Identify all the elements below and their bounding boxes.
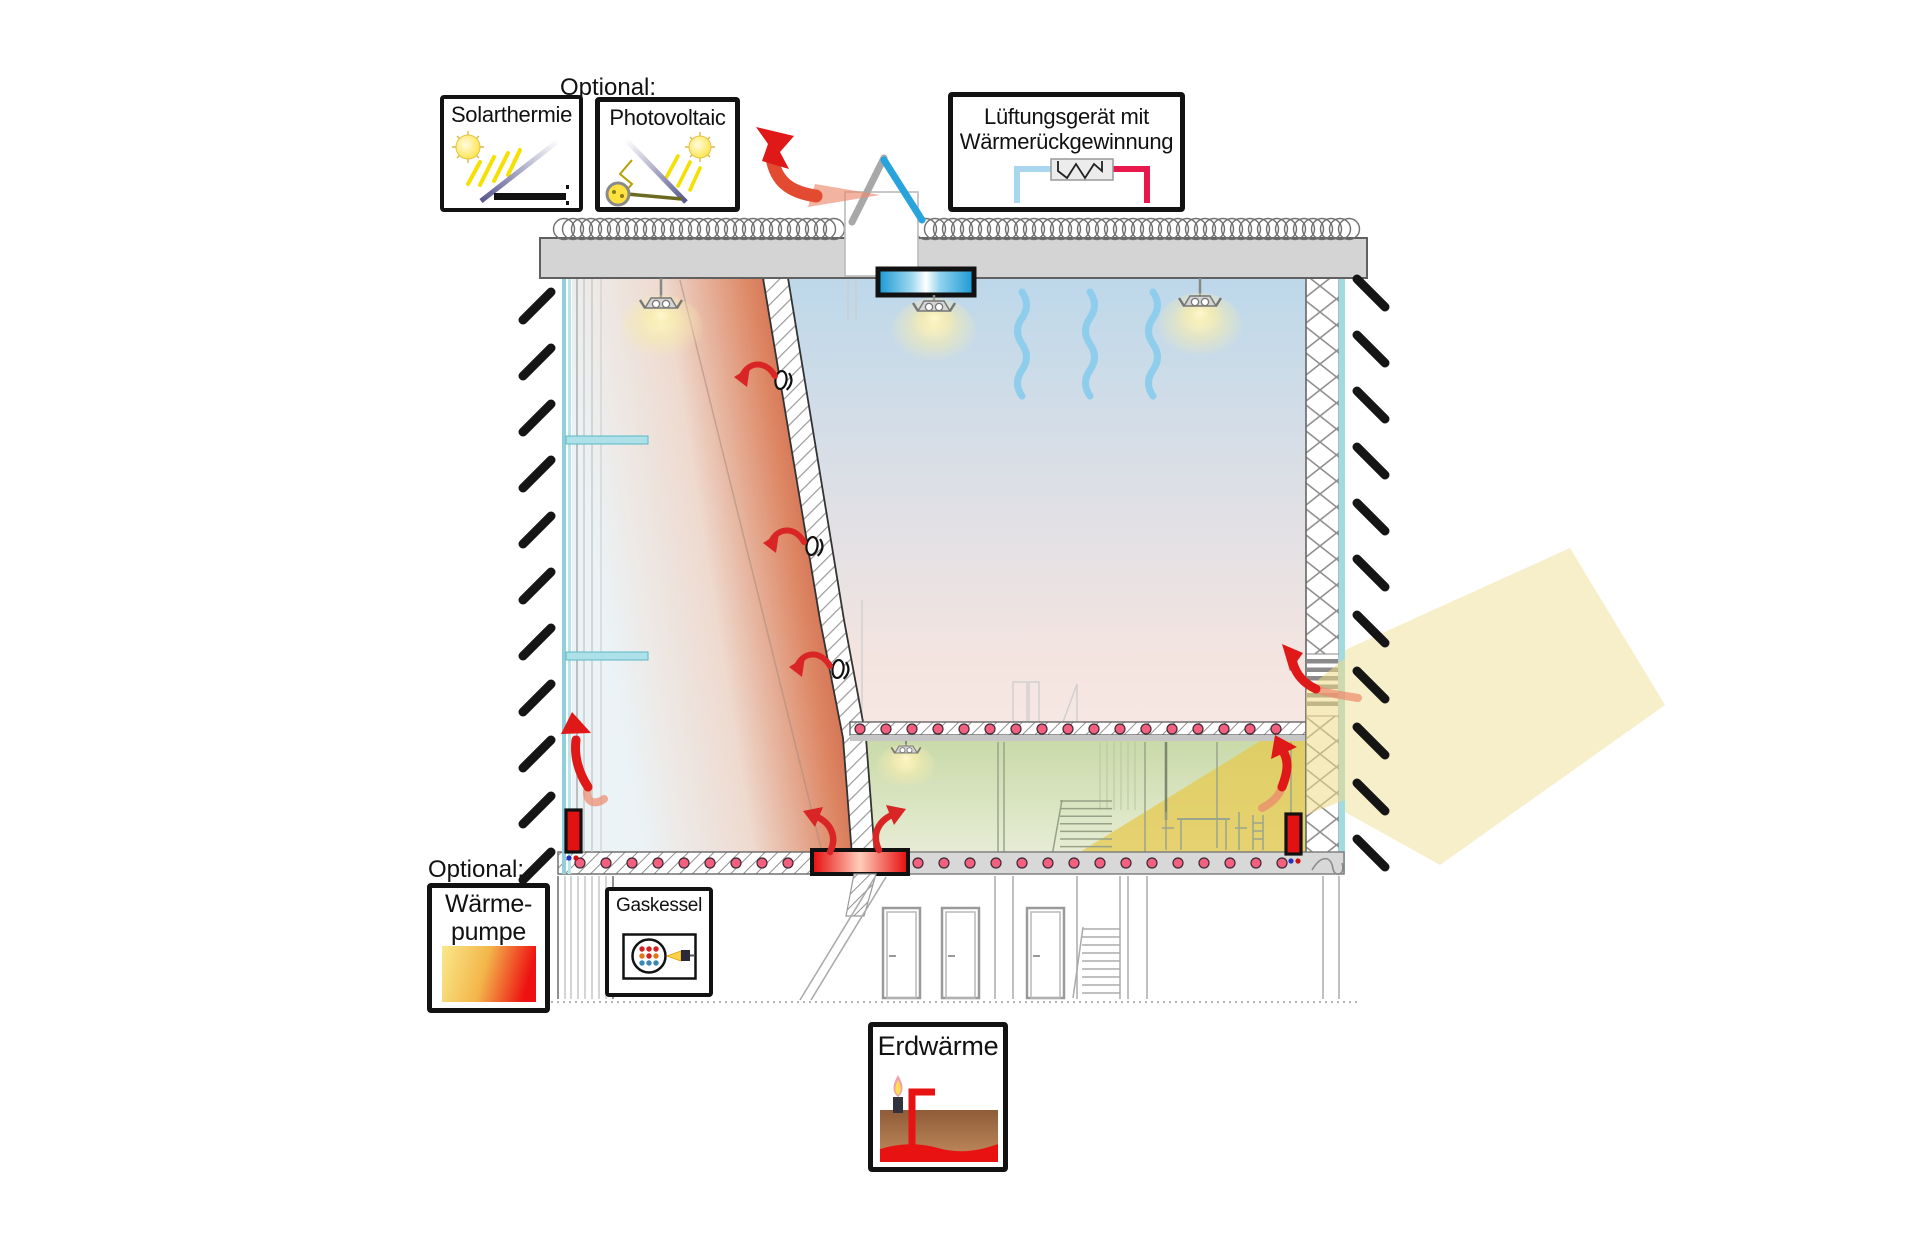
ground-probe-flame-icon [873, 1067, 1003, 1167]
mezzanine-slab [850, 722, 1306, 741]
radiator-left [566, 810, 581, 852]
basement-wall-stub [846, 874, 876, 916]
roof-insulation-coil [554, 219, 1360, 240]
gas-burner-icon [622, 933, 697, 981]
heat-gradient-swatch [442, 946, 536, 1002]
supply-air-diffuser [878, 269, 974, 301]
ventilation-label-line1: Lüftungsgerät mit [953, 105, 1180, 130]
heat-exchanger-pipes-icon [1001, 153, 1161, 205]
solar-thermal-label: Solarthermie [444, 103, 579, 128]
optional-label-bottom: Optional: [428, 856, 524, 884]
legend-box-photovoltaic: Photovoltaic [595, 97, 740, 212]
heat-pump-label-line2: pumpe [432, 918, 545, 946]
radiator-right [1286, 814, 1301, 854]
basement-staircase [1073, 927, 1120, 998]
photovoltaic-label: Photovoltaic [600, 106, 735, 131]
facade-ledge [566, 436, 648, 444]
site-hatch-left [523, 292, 551, 880]
legend-box-heat-pump: Wärme- pumpe [427, 883, 550, 1013]
legend-box-ventilation: Lüftungsgerät mit Wärmerückgewinnung [948, 92, 1185, 212]
exhaust-air-arrow [756, 127, 880, 207]
legend-box-solar-thermal: Solarthermie [440, 95, 583, 212]
energy-concept-diagram: Optional: Solarthermie Photovoltaic [0, 0, 1920, 1236]
solar-collector-sun-icon [446, 129, 577, 209]
sun-beam-exterior [1345, 548, 1665, 865]
facade-ledge [566, 652, 648, 660]
basement-ramp [800, 877, 875, 1000]
roof-vent-shaft [845, 192, 918, 276]
ventilation-label-line2: Wärmerückgewinnung [953, 130, 1180, 155]
pv-panel-sun-generator-icon [602, 130, 733, 208]
gas-boiler-label: Gaskessel [609, 895, 709, 916]
geothermal-label: Erdwärme [873, 1031, 1003, 1061]
heat-pump-label-line1: Wärme- [432, 890, 545, 918]
legend-box-gas-boiler: Gaskessel [605, 887, 713, 997]
legend-box-geothermal: Erdwärme [868, 1022, 1008, 1172]
ground-slab [558, 852, 1344, 874]
